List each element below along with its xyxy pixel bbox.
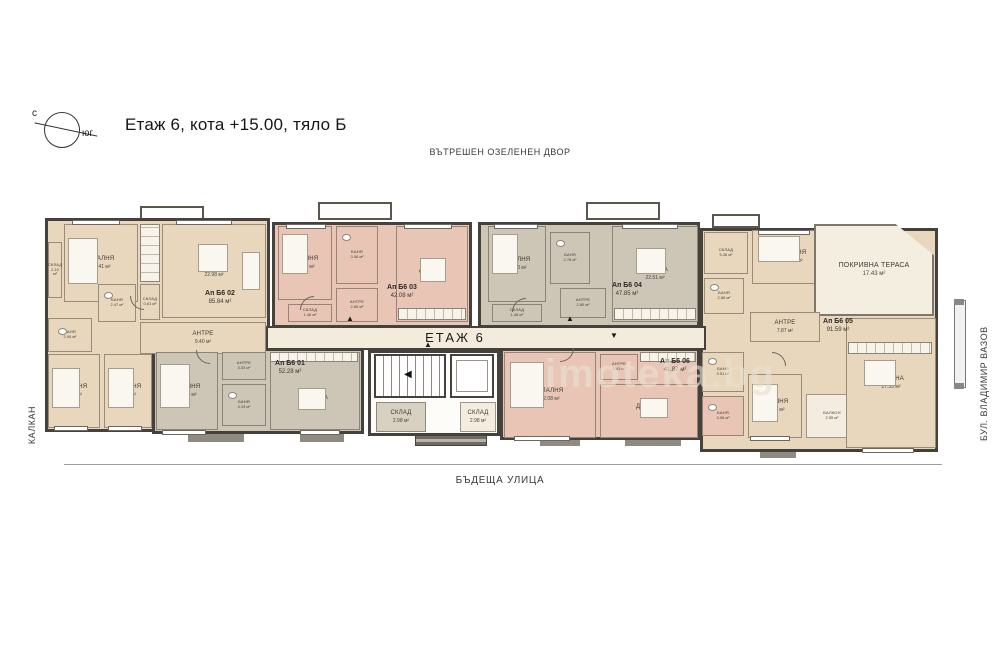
room-bath: БАНЯ3.51 м² bbox=[702, 352, 744, 392]
apartment-area: 42.08 м² bbox=[372, 293, 432, 301]
roof-ledge bbox=[586, 202, 660, 220]
room-hall: АНТРЕ2.41 м² bbox=[600, 354, 638, 380]
toilet-icon bbox=[710, 284, 719, 291]
room-area: 22.51 м² bbox=[645, 275, 664, 281]
furniture-bed bbox=[68, 238, 98, 284]
left-side-label: КАЛКАН bbox=[27, 397, 37, 453]
apartment-id: Ап Б6 05 bbox=[808, 318, 868, 327]
kitchen-counter bbox=[614, 308, 696, 320]
toilet-icon bbox=[104, 292, 113, 299]
apartment-label-b6-01: Ап Б6 0152.28 м² bbox=[258, 360, 322, 376]
furniture-bed bbox=[282, 234, 308, 274]
room-area: 3.08 м² bbox=[351, 255, 364, 260]
compass: с юг bbox=[30, 106, 100, 150]
toilet-icon bbox=[342, 234, 351, 241]
compass-north-label: с bbox=[32, 108, 37, 119]
furniture-bed bbox=[510, 362, 544, 408]
window bbox=[176, 220, 232, 225]
apartment-label-b6-05: Ап Б6 0591.59 м² bbox=[808, 318, 868, 334]
apartment-area: 85.84 м² bbox=[176, 299, 264, 307]
apartment-id: Ап Б6 02 bbox=[176, 290, 264, 299]
window bbox=[300, 430, 340, 435]
room-area: 2.55 м² bbox=[826, 416, 839, 421]
window bbox=[862, 448, 914, 453]
furniture-sofa bbox=[242, 252, 260, 290]
room-area: 2.47 м² bbox=[111, 303, 124, 308]
street-label: БЪДЕЩА УЛИЦА bbox=[0, 475, 1000, 486]
room-area: 2.98 м² bbox=[393, 418, 409, 424]
apartment-label-b6-02: Ап Б6 0285.84 м² bbox=[176, 290, 264, 306]
window bbox=[622, 224, 678, 229]
room-area: 0.61 м² bbox=[144, 302, 157, 307]
furniture-table bbox=[198, 244, 228, 272]
furniture-bed bbox=[108, 368, 134, 408]
room-area: 3.03 м² bbox=[238, 366, 251, 371]
apartment-area: 41.87 м² bbox=[642, 367, 708, 375]
entrance-arrow-icon: ▲ bbox=[346, 315, 354, 323]
window bbox=[54, 426, 88, 431]
room-storage: СКЛАД2.98 м² bbox=[376, 402, 426, 432]
apartment-id: Ап Б6 01 bbox=[258, 360, 322, 369]
room-storage: СКЛАД2.98 м² bbox=[460, 402, 496, 432]
toilet-icon bbox=[228, 392, 237, 399]
room-bath: БАНЯ3.06 м² bbox=[702, 396, 744, 436]
apartment-id: Ап Б6 06 bbox=[642, 358, 708, 367]
room-bath: БАНЯ3.19 м² bbox=[222, 384, 266, 426]
window bbox=[758, 230, 810, 235]
roof-ledge bbox=[712, 214, 760, 228]
roof-ledge bbox=[318, 202, 392, 220]
window bbox=[162, 430, 206, 435]
room-area: 2.56 м² bbox=[718, 296, 731, 301]
room-area: 5.36 м² bbox=[720, 253, 733, 258]
room-area: 22.98 м² bbox=[204, 272, 223, 278]
apartment-label-b6-06: Ап Б6 0641.87 м² bbox=[642, 358, 708, 374]
furniture-table bbox=[298, 388, 326, 410]
room-area: 1.46 м² bbox=[511, 313, 524, 318]
room-area: 2.94 м² bbox=[64, 335, 77, 340]
room-area: 9.40 м² bbox=[195, 339, 211, 345]
furniture-bed bbox=[758, 236, 800, 262]
toilet-icon bbox=[556, 240, 565, 247]
apartment-area: 52.28 м² bbox=[258, 369, 322, 377]
apartment-id: Ап Б6 03 bbox=[372, 284, 432, 293]
room-name: СКЛАД bbox=[390, 410, 411, 417]
kitchen-counter bbox=[848, 342, 932, 354]
stairs-direction-icon: ◀ bbox=[404, 370, 412, 380]
compass-south-label: юг bbox=[82, 128, 93, 139]
entrance-arrow-icon: ▲ bbox=[566, 315, 574, 323]
entrance-arrow-icon: ▼ bbox=[610, 332, 618, 340]
page-title: Етаж 6, кота +15.00, тяло Б bbox=[125, 115, 347, 135]
elevator bbox=[450, 354, 494, 398]
window bbox=[72, 220, 120, 225]
toilet-icon bbox=[708, 404, 717, 411]
window bbox=[514, 436, 570, 441]
room-name: АНТРЕ bbox=[192, 331, 213, 338]
furniture-bed bbox=[52, 368, 80, 408]
apartment-area: 91.59 м² bbox=[808, 327, 868, 335]
furniture-table bbox=[636, 248, 666, 274]
floor-label: ЕТАЖ 6 bbox=[400, 330, 510, 345]
furniture-bed bbox=[492, 234, 518, 274]
furniture-bed bbox=[160, 364, 190, 408]
room-name: АНТРЕ bbox=[774, 320, 795, 327]
room-bath: БАНЯ2.78 м² bbox=[550, 232, 590, 284]
furniture-table bbox=[420, 258, 446, 282]
room-area: 7.87 м² bbox=[777, 328, 793, 334]
apartment-area: 47.85 м² bbox=[594, 291, 660, 299]
floor-plan-page: с юг Етаж 6, кота +15.00, тяло Б ВЪТРЕШЕ… bbox=[0, 0, 1000, 666]
room-area: 2.10 м² bbox=[49, 268, 61, 278]
apartment-label-b6-04: Ап Б6 0447.85 м² bbox=[594, 282, 660, 298]
room-name: СКЛАД bbox=[467, 410, 488, 417]
apartment-id: Ап Б6 04 bbox=[594, 282, 660, 291]
apartment-label-b6-03: Ап Б6 0342.08 м² bbox=[372, 284, 432, 300]
street-divider-line bbox=[64, 464, 942, 465]
boulevard-strip bbox=[954, 300, 966, 388]
room-area: 3.51 м² bbox=[717, 372, 730, 377]
window bbox=[286, 224, 326, 229]
room-name: ПОКРИВНА ТЕРАСА bbox=[839, 262, 910, 270]
room-area: 2.78 м² bbox=[564, 258, 577, 263]
room-bath: БАНЯ2.47 м² bbox=[98, 284, 136, 322]
room-bath: БАНЯ2.94 м² bbox=[48, 318, 92, 352]
kitchen-counter bbox=[140, 224, 160, 282]
room-area: 2.80 м² bbox=[351, 305, 364, 310]
furniture-bed bbox=[752, 384, 778, 422]
window bbox=[750, 436, 790, 441]
window bbox=[404, 224, 452, 229]
courtyard-label: ВЪТРЕШЕН ОЗЕЛЕНЕН ДВОР bbox=[0, 147, 1000, 157]
room-storage: СКЛАД5.36 м² bbox=[704, 232, 748, 274]
window bbox=[108, 426, 142, 431]
room-area: 2.98 м² bbox=[470, 418, 486, 424]
room-area: 17.43 м² bbox=[863, 271, 886, 278]
room-storage: СКЛАД2.10 м² bbox=[48, 242, 62, 298]
toilet-icon bbox=[708, 358, 717, 365]
right-side-label: БУЛ. ВЛАДИМИР ВАЗОВ bbox=[979, 329, 989, 441]
furniture-table bbox=[864, 360, 896, 386]
room-area: 3.06 м² bbox=[717, 416, 730, 421]
furniture-table bbox=[640, 398, 668, 418]
room-area: 1.46 м² bbox=[304, 313, 317, 318]
toilet-icon bbox=[58, 328, 67, 335]
room-area: 3.19 м² bbox=[238, 405, 251, 410]
room-area: 2.41 м² bbox=[613, 367, 626, 372]
window bbox=[494, 224, 538, 229]
room-bath: БАНЯ2.56 м² bbox=[704, 278, 744, 314]
kitchen-counter bbox=[398, 308, 466, 320]
room-area: 2.80 м² bbox=[577, 303, 590, 308]
